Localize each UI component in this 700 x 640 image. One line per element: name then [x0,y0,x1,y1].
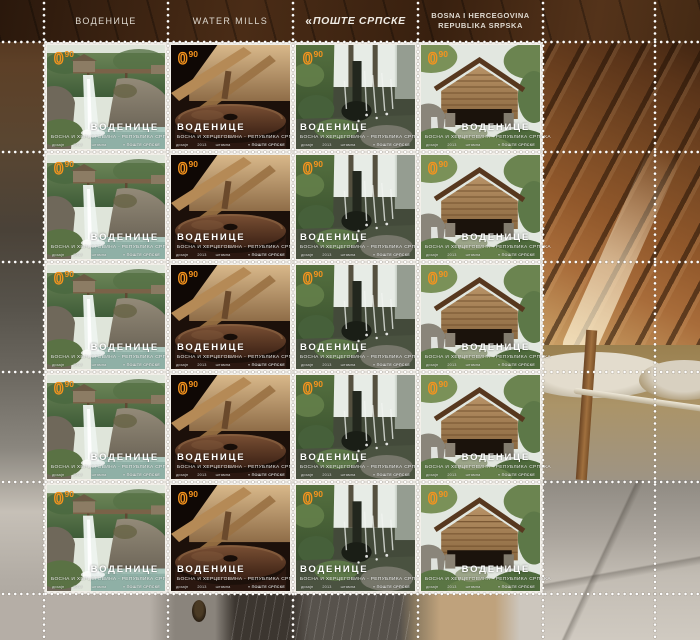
stamp-imprint-left: дизајн2013штампа [176,473,239,477]
stamp-imprint-left: дизајн2013штампа [52,143,115,147]
denomination-cents: 90 [188,489,197,499]
stamp-country-text: БОСНА И ХЕРЦЕГОВИНА - РЕПУБЛИКА СРПСКА [300,577,426,582]
stamp-denomination: 090 [303,50,323,68]
stamp-country-text: БОСНА И ХЕРЦЕГОВИНА - РЕПУБЛИКА СРПСКА [51,465,161,470]
denomination-integer: 0 [178,379,187,398]
denomination-integer: 0 [428,269,437,288]
denomination-integer: 0 [303,49,312,68]
stamp-sheet: ВОДЕНИЦЕ WATER MILLS « ПОШТЕ СРПСКЕ BOSN… [0,0,700,640]
denomination-cents: 90 [64,49,73,59]
header-label-poste-srpske: « ПОШТЕ СРПСКЕ [293,0,418,42]
stamp-grid: 090 ВОДЕНИЦЕ БОСНА И ХЕРЦЕГОВИНА - РЕПУБ… [44,42,543,594]
stamp-country-text: БОСНА И ХЕРЦЕГОВИНА - РЕПУБЛИКА СРПСКА [177,245,303,250]
stamp-denomination: 090 [428,270,448,288]
poste-srpske-mark: « ПОШТЕ СРПСКЕ [373,143,410,147]
poste-srpske-mark: « ПОШТЕ СРПСКЕ [373,253,410,257]
stamp-imprint-row: дизајн2013штампа « ПОШТЕ СРПСКЕ [426,585,535,589]
stamp-imprint-left: дизајн2013штампа [176,143,239,147]
denomination-cents: 90 [438,269,447,279]
stamp-millstone-interior: 090 ВОДЕНИЦЕ БОСНА И ХЕРЦЕГОВИНА - РЕПУБ… [168,42,293,152]
denomination-integer: 0 [428,49,437,68]
stamp-imprint-row: дизајн2013штампа « ПОШТЕ СРПСКЕ [52,253,160,257]
header-label-country: BOSNA I HERCEGOVINA REPUBLIKA SRPSKA [418,0,543,42]
stamp-imprint-row: дизајн2013штампа « ПОШТЕ СРПСКЕ [301,253,410,257]
stamp-denomination: 090 [303,160,323,178]
country-line-2: REPUBLIKA SRPSKA [438,21,523,30]
stamp-denomination: 090 [54,380,74,398]
stamp-denomination: 090 [303,270,323,288]
stamp-imprint-left: дизајн2013штампа [426,363,489,367]
stamp-waterfall-mill: 090 ВОДЕНИЦЕ БОСНА И ХЕРЦЕГОВИНА - РЕПУБ… [44,42,168,152]
stamp-imprint-left: дизајн2013штампа [301,363,364,367]
stamp-title: ВОДЕНИЦЕ [462,232,530,243]
stamp-waterfall-mill: 090 ВОДЕНИЦЕ БОСНА И ХЕРЦЕГОВИНА - РЕПУБ… [44,152,168,262]
stamp-imprint-left: дизајн2013штампа [176,363,239,367]
stamp-title: ВОДЕНИЦЕ [91,232,159,243]
stamp-imprint-row: дизајн2013штампа « ПОШТЕ СРПСКЕ [301,473,410,477]
poste-srpske-mark: « ПОШТЕ СРПСКЕ [248,253,285,257]
denomination-cents: 90 [188,159,197,169]
stamp-imprint-left: дизајн2013штампа [426,253,489,257]
stamp-imprint-left: дизајн2013штампа [176,585,239,589]
denomination-integer: 0 [178,159,187,178]
denomination-integer: 0 [303,489,312,508]
stamp-denomination: 090 [428,160,448,178]
stone-steps-photo [543,480,700,640]
stamp-title: ВОДЕНИЦЕ [300,452,368,463]
denomination-cents: 90 [313,379,322,389]
stamp-title: ВОДЕНИЦЕ [177,232,245,243]
stamp-imprint-left: дизајн2013штампа [301,585,364,589]
header-label-vodenice: ВОДЕНИЦЕ [44,0,168,42]
poste-srpske-mark: « ПОШТЕ СРПСКЕ [123,253,160,257]
poste-srpske-mark: « ПОШТЕ СРПСКЕ [498,363,535,367]
stamp-title: ВОДЕНИЦЕ [91,564,159,575]
stamp-country-text: БОСНА И ХЕРЦЕГОВИНА - РЕПУБЛИКА СРПСКА [177,577,303,582]
stamp-waterwheel: 090 ВОДЕНИЦЕ БОСНА И ХЕРЦЕГОВИНА - РЕПУБ… [293,262,418,372]
stamp-imprint-left: дизајн2013штампа [301,143,364,147]
denomination-integer: 0 [178,49,187,68]
denomination-integer: 0 [178,489,187,508]
stamp-imprint-row: дизајн2013штампа « ПОШТЕ СРПСКЕ [176,143,285,147]
stamp-country-text: БОСНА И ХЕРЦЕГОВИНА - РЕПУБЛИКА СРПСКА [51,135,161,140]
stamp-title: ВОДЕНИЦЕ [177,452,245,463]
stamp-country-text: БОСНА И ХЕРЦЕГОВИНА - РЕПУБЛИКА СРПСКА [425,245,536,250]
denomination-integer: 0 [303,269,312,288]
stamp-denomination: 090 [428,50,448,68]
stamp-denomination: 090 [178,50,198,68]
stamp-title: ВОДЕНИЦЕ [462,122,530,133]
stamp-country-text: БОСНА И ХЕРЦЕГОВИНА - РЕПУБЛИКА СРПСКА [300,135,426,140]
stamp-title: ВОДЕНИЦЕ [300,232,368,243]
poste-srpske-mark: « ПОШТЕ СРПСКЕ [248,585,285,589]
poste-srpske-mark: « ПОШТЕ СРПСКЕ [248,473,285,477]
stamp-country-text: БОСНА И ХЕРЦЕГОВИНА - РЕПУБЛИКА СРПСКА [51,355,161,360]
poste-srpske-text: ПОШТЕ СРПСКЕ [313,15,406,27]
stamp-country-text: БОСНА И ХЕРЦЕГОВИНА - РЕПУБЛИКА СРПСКА [425,135,536,140]
stamp-millstone-interior: 090 ВОДЕНИЦЕ БОСНА И ХЕРЦЕГОВИНА - РЕПУБ… [168,152,293,262]
denomination-cents: 90 [188,49,197,59]
stamp-country-text: БОСНА И ХЕРЦЕГОВИНА - РЕПУБЛИКА СРПСКА [300,245,426,250]
denomination-integer: 0 [54,159,63,178]
stamp-title: ВОДЕНИЦЕ [91,122,159,133]
stamp-waterfall-mill: 090 ВОДЕНИЦЕ БОСНА И ХЕРЦЕГОВИНА - РЕПУБ… [44,262,168,372]
poste-srpske-mark: « ПОШТЕ СРПСКЕ [123,473,160,477]
stamp-millstone-interior: 090 ВОДЕНИЦЕ БОСНА И ХЕРЦЕГОВИНА - РЕПУБ… [168,482,293,594]
stamp-waterwheel: 090 ВОДЕНИЦЕ БОСНА И ХЕРЦЕГОВИНА - РЕПУБ… [293,42,418,152]
stamp-denomination: 090 [54,270,74,288]
poste-srpske-mark: « ПОШТЕ СРПСКЕ [498,253,535,257]
stamp-title: ВОДЕНИЦЕ [462,452,530,463]
sheet-background-left-margin [0,0,44,640]
stamp-title: ВОДЕНИЦЕ [462,342,530,353]
stamp-imprint-left: дизајн2013штампа [52,473,115,477]
poste-srpske-mark: « ПОШТЕ СРПСКЕ [123,363,160,367]
stamp-imprint-left: дизајн2013штампа [301,253,364,257]
stamp-country-text: БОСНА И ХЕРЦЕГОВИНА - РЕПУБЛИКА СРПСКА [425,577,536,582]
denomination-integer: 0 [303,379,312,398]
stamp-denomination: 090 [178,490,198,508]
stamp-title: ВОДЕНИЦЕ [91,342,159,353]
stamp-imprint-row: дизајн2013штампа « ПОШТЕ СРПСКЕ [176,253,285,257]
denomination-integer: 0 [54,269,63,288]
stamp-denomination: 090 [178,160,198,178]
stamp-imprint-left: дизајн2013штампа [426,473,489,477]
denomination-cents: 90 [313,489,322,499]
stamp-mill-hut: 090 ВОДЕНИЦЕ БОСНА И ХЕРЦЕГОВИНА - РЕПУБ… [418,262,543,372]
stamp-denomination: 090 [54,50,74,68]
denomination-integer: 0 [303,159,312,178]
denomination-cents: 90 [64,489,73,499]
stamp-millstone-interior: 090 ВОДЕНИЦЕ БОСНА И ХЕРЦЕГОВИНА - РЕПУБ… [168,372,293,482]
stamp-mill-hut: 090 ВОДЕНИЦЕ БОСНА И ХЕРЦЕГОВИНА - РЕПУБ… [418,42,543,152]
stamp-mill-hut: 090 ВОДЕНИЦЕ БОСНА И ХЕРЦЕГОВИНА - РЕПУБ… [418,482,543,594]
stamp-mill-hut: 090 ВОДЕНИЦЕ БОСНА И ХЕРЦЕГОВИНА - РЕПУБ… [418,372,543,482]
stamp-waterfall-mill: 090 ВОДЕНИЦЕ БОСНА И ХЕРЦЕГОВИНА - РЕПУБ… [44,372,168,482]
denomination-cents: 90 [313,269,322,279]
denomination-cents: 90 [438,489,447,499]
stamp-millstone-interior: 090 ВОДЕНИЦЕ БОСНА И ХЕРЦЕГОВИНА - РЕПУБ… [168,262,293,372]
stamp-country-text: БОСНА И ХЕРЦЕГОВИНА - РЕПУБЛИКА СРПСКА [177,465,303,470]
poste-srpske-logo-icon: « [305,14,310,28]
poste-srpske-mark: « ПОШТЕ СРПСКЕ [498,473,535,477]
stamp-waterwheel: 090 ВОДЕНИЦЕ БОСНА И ХЕРЦЕГОВИНА - РЕПУБ… [293,482,418,594]
poste-srpske-mark: « ПОШТЕ СРПСКЕ [248,363,285,367]
denomination-cents: 90 [438,379,447,389]
denomination-cents: 90 [188,269,197,279]
denomination-cents: 90 [438,159,447,169]
poste-srpske-mark: « ПОШТЕ СРПСКЕ [123,143,160,147]
poste-srpske-mark: « ПОШТЕ СРПСКЕ [498,585,535,589]
denomination-cents: 90 [64,379,73,389]
stamp-country-text: БОСНА И ХЕРЦЕГОВИНА - РЕПУБЛИКА СРПСКА [300,355,426,360]
stamp-title: ВОДЕНИЦЕ [177,122,245,133]
denomination-integer: 0 [178,269,187,288]
stamp-denomination: 090 [54,160,74,178]
stamp-imprint-row: дизајн2013штампа « ПОШТЕ СРПСКЕ [52,473,160,477]
poste-srpske-mark: « ПОШТЕ СРПСКЕ [248,143,285,147]
denomination-integer: 0 [428,379,437,398]
denomination-integer: 0 [428,159,437,178]
header-label-water-mills: WATER MILLS [168,0,293,42]
stamp-imprint-left: дизајн2013штампа [301,473,364,477]
stamp-denomination: 090 [428,380,448,398]
poste-srpske-mark: « ПОШТЕ СРПСКЕ [123,585,160,589]
stamp-denomination: 090 [54,490,74,508]
denomination-cents: 90 [64,269,73,279]
stamp-title: ВОДЕНИЦЕ [462,564,530,575]
stamp-country-text: БОСНА И ХЕРЦЕГОВИНА - РЕПУБЛИКА СРПСКА [177,135,303,140]
poste-srpske-mark: « ПОШТЕ СРПСКЕ [373,585,410,589]
stamp-imprint-row: дизајн2013штампа « ПОШТЕ СРПСКЕ [176,363,285,367]
denomination-integer: 0 [54,49,63,68]
spider-photo [192,600,206,622]
stamp-imprint-left: дизајн2013штампа [52,363,115,367]
stamp-imprint-row: дизајн2013штампа « ПОШТЕ СРПСКЕ [52,143,160,147]
stamp-country-text: БОСНА И ХЕРЦЕГОВИНА - РЕПУБЛИКА СРПСКА [51,245,161,250]
stamp-denomination: 090 [303,490,323,508]
stamp-country-text: БОСНА И ХЕРЦЕГОВИНА - РЕПУБЛИКА СРПСКА [51,577,161,582]
denomination-integer: 0 [54,489,63,508]
stamp-country-text: БОСНА И ХЕРЦЕГОВИНА - РЕПУБЛИКА СРПСКА [425,465,536,470]
spider-web-photo [230,594,410,640]
stamp-denomination: 090 [428,490,448,508]
stamp-denomination: 090 [303,380,323,398]
stamp-mill-hut: 090 ВОДЕНИЦЕ БОСНА И ХЕРЦЕГОВИНА - РЕПУБ… [418,152,543,262]
stamp-imprint-row: дизајн2013штампа « ПОШТЕ СРПСКЕ [52,363,160,367]
stamp-imprint-row: дизајн2013штампа « ПОШТЕ СРПСКЕ [52,585,160,589]
stamp-imprint-left: дизајн2013штампа [176,253,239,257]
stamp-imprint-row: дизајн2013штампа « ПОШТЕ СРПСКЕ [301,585,410,589]
stamp-imprint-left: дизајн2013штампа [426,585,489,589]
sheet-background-right-photo [543,0,700,640]
denomination-cents: 90 [313,159,322,169]
denomination-integer: 0 [54,379,63,398]
denomination-cents: 90 [188,379,197,389]
stamp-country-text: БОСНА И ХЕРЦЕГОВИНА - РЕПУБЛИКА СРПСКА [177,355,303,360]
country-line-1: BOSNA I HERCEGOVINA [431,11,529,20]
stamp-imprint-left: дизајн2013штампа [52,585,115,589]
stamp-country-text: БОСНА И ХЕРЦЕГОВИНА - РЕПУБЛИКА СРПСКА [425,355,536,360]
stamp-title: ВОДЕНИЦЕ [177,342,245,353]
poste-srpske-mark: « ПОШТЕ СРПСКЕ [498,143,535,147]
stamp-imprint-row: дизајн2013штампа « ПОШТЕ СРПСКЕ [301,363,410,367]
stamp-imprint-row: дизајн2013штампа « ПОШТЕ СРПСКЕ [176,473,285,477]
denomination-integer: 0 [428,489,437,508]
stamp-waterwheel: 090 ВОДЕНИЦЕ БОСНА И ХЕРЦЕГОВИНА - РЕПУБ… [293,152,418,262]
stamp-title: ВОДЕНИЦЕ [300,342,368,353]
stamp-country-text: БОСНА И ХЕРЦЕГОВИНА - РЕПУБЛИКА СРПСКА [300,465,426,470]
stamp-imprint-row: дизајн2013штампа « ПОШТЕ СРПСКЕ [426,363,535,367]
stamp-imprint-row: дизајн2013штампа « ПОШТЕ СРПСКЕ [426,473,535,477]
stamp-title: ВОДЕНИЦЕ [300,564,368,575]
stamp-imprint-row: дизајн2013штампа « ПОШТЕ СРПСКЕ [176,585,285,589]
denomination-cents: 90 [313,49,322,59]
stamp-imprint-row: дизајн2013штампа « ПОШТЕ СРПСКЕ [426,143,535,147]
poste-srpske-mark: « ПОШТЕ СРПСКЕ [373,473,410,477]
stamp-imprint-left: дизајн2013штампа [52,253,115,257]
stamp-title: ВОДЕНИЦЕ [91,452,159,463]
denomination-cents: 90 [438,49,447,59]
stamp-imprint-row: дизајн2013штампа « ПОШТЕ СРПСКЕ [301,143,410,147]
stamp-denomination: 090 [178,270,198,288]
stamp-imprint-left: дизајн2013штампа [426,143,489,147]
stamp-title: ВОДЕНИЦЕ [300,122,368,133]
stamp-waterwheel: 090 ВОДЕНИЦЕ БОСНА И ХЕРЦЕГОВИНА - РЕПУБ… [293,372,418,482]
stamp-imprint-row: дизајн2013штампа « ПОШТЕ СРПСКЕ [426,253,535,257]
denomination-cents: 90 [64,159,73,169]
poste-srpske-mark: « ПОШТЕ СРПСКЕ [373,363,410,367]
stamp-denomination: 090 [178,380,198,398]
stamp-waterfall-mill: 090 ВОДЕНИЦЕ БОСНА И ХЕРЦЕГОВИНА - РЕПУБ… [44,482,168,594]
stamp-title: ВОДЕНИЦЕ [177,564,245,575]
